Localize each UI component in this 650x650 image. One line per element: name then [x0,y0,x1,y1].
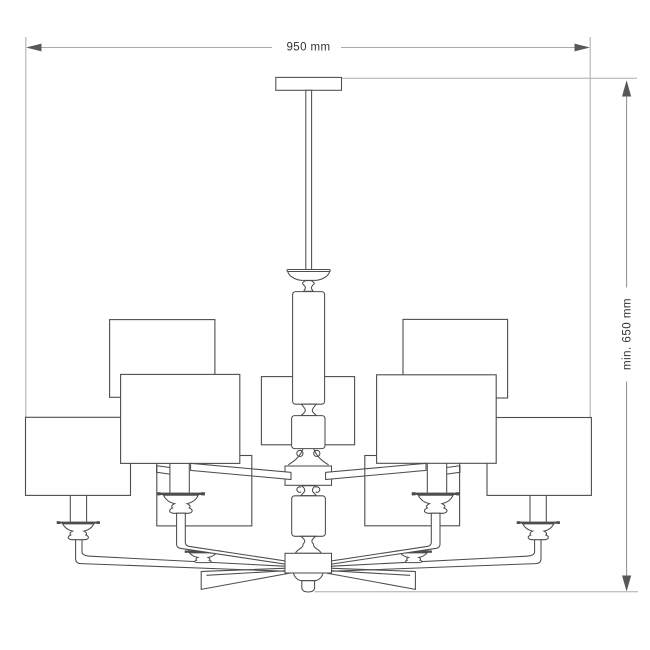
svg-text:950 mm: 950 mm [287,42,331,54]
svg-text:min. 650 mm: min. 650 mm [621,298,633,370]
